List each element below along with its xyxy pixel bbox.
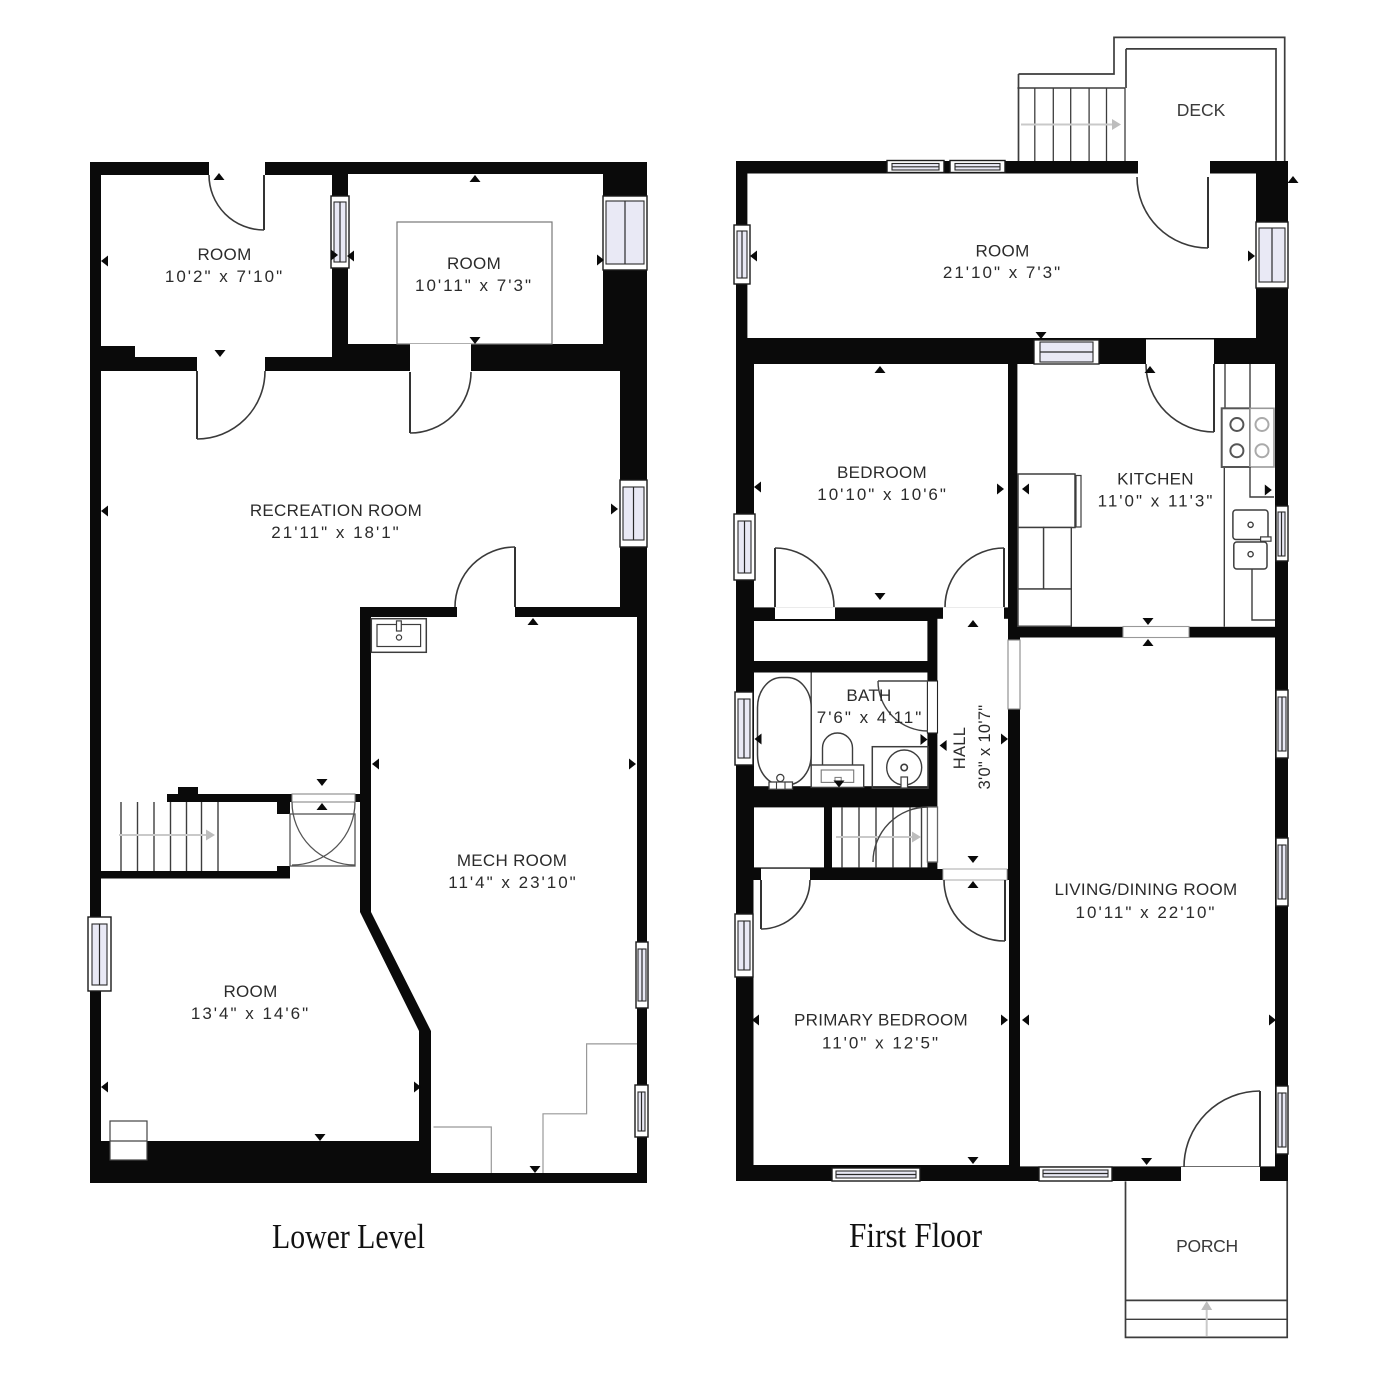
svg-text:BATH: BATH: [846, 686, 891, 705]
svg-text:MECH ROOM: MECH ROOM: [457, 851, 567, 870]
svg-text:10'11" x 7'3": 10'11" x 7'3": [415, 276, 533, 295]
svg-text:ROOM: ROOM: [197, 245, 251, 264]
svg-text:11'0" x 11'3": 11'0" x 11'3": [1098, 492, 1215, 511]
svg-text:ROOM: ROOM: [975, 242, 1029, 261]
svg-text:3'0" x 10'7": 3'0" x 10'7": [976, 705, 994, 790]
svg-text:11'0" x 12'5": 11'0" x 12'5": [822, 1034, 940, 1053]
svg-text:HALL: HALL: [951, 727, 969, 769]
svg-text:10'2" x 7'10": 10'2" x 7'10": [165, 267, 284, 286]
svg-text:BEDROOM: BEDROOM: [837, 463, 927, 482]
svg-text:ROOM: ROOM: [447, 254, 501, 273]
svg-text:7'6" x 4'11": 7'6" x 4'11": [817, 708, 924, 727]
svg-text:21'11" x 18'1": 21'11" x 18'1": [271, 523, 400, 542]
svg-text:PORCH: PORCH: [1176, 1236, 1238, 1256]
svg-text:PRIMARY BEDROOM: PRIMARY BEDROOM: [794, 1011, 968, 1030]
svg-text:Lower Level: Lower Level: [272, 1217, 425, 1256]
svg-text:RECREATION ROOM: RECREATION ROOM: [250, 501, 422, 520]
svg-text:LIVING/DINING ROOM: LIVING/DINING ROOM: [1055, 880, 1238, 899]
svg-text:DECK: DECK: [1177, 100, 1226, 120]
svg-text:First Floor: First Floor: [849, 1216, 982, 1255]
svg-text:10'10" x 10'6": 10'10" x 10'6": [817, 485, 948, 504]
svg-text:ROOM: ROOM: [223, 982, 277, 1001]
svg-text:10'11" x 22'10": 10'11" x 22'10": [1076, 903, 1217, 922]
svg-text:11'4" x 23'10": 11'4" x 23'10": [448, 873, 577, 892]
svg-text:KITCHEN: KITCHEN: [1117, 470, 1194, 489]
svg-text:13'4" x 14'6": 13'4" x 14'6": [191, 1004, 310, 1023]
svg-text:21'10" x 7'3": 21'10" x 7'3": [943, 263, 1062, 282]
